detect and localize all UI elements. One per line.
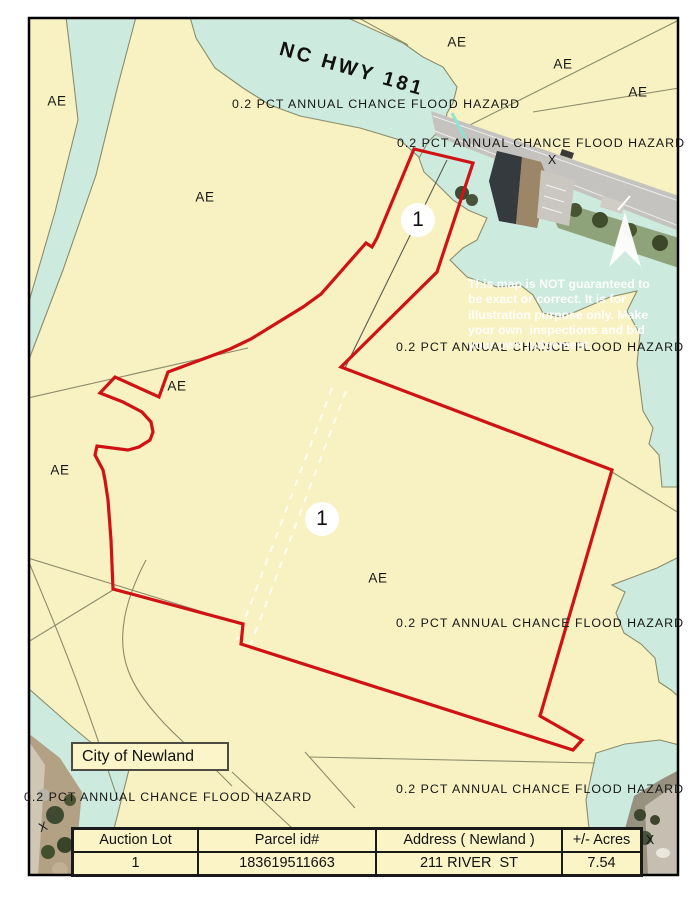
disclaimer-line: be exact or correct. It is for [468, 292, 688, 307]
disclaimer-line: This map is NOT guaranteed to [468, 277, 688, 292]
table-header-parcel: Parcel id# [198, 829, 376, 852]
parking-lot [537, 170, 575, 226]
disclaimer-text: This map is NOT guaranteed to be exact o… [468, 277, 688, 353]
zone-ae-label: AE [447, 35, 466, 50]
table-header-address: Address ( Newland ) [376, 829, 562, 852]
flood-hazard-label: 0.2 PCT ANNUAL CHANCE FLOOD HAZARD [232, 97, 520, 111]
table-cell-parcel: 183619511663 [198, 852, 376, 875]
flood-hazard-label: 0.2 PCT ANNUAL CHANCE FLOOD HAZARD [397, 136, 685, 150]
zone-ae-label: AE [628, 85, 647, 100]
lot-marker: 1 [305, 502, 339, 536]
flood-map-page: NC HWY 181 0.2 PCT ANNUAL CHANCE FLOOD H… [0, 0, 695, 899]
flood-hazard-label: 0.2 PCT ANNUAL CHANCE FLOOD HAZARD [24, 790, 312, 804]
flood-hazard-label: 0.2 PCT ANNUAL CHANCE FLOOD HAZARD [396, 782, 684, 796]
auction-table: Auction Lot Parcel id# Address ( Newland… [71, 827, 643, 877]
disclaimer-line: your own judgement. [468, 338, 688, 353]
table-header-lot: Auction Lot [73, 829, 198, 852]
table-cell-lot: 1 [73, 852, 198, 875]
disclaimer-line: illustration purpose only. Make [468, 308, 688, 323]
city-label-box: City of Newland [71, 742, 229, 771]
zone-x-label: X [548, 153, 556, 167]
zone-ae-label: AE [368, 571, 387, 586]
table-cell-address: 211 RIVER ST [376, 852, 562, 875]
lot-marker: 1 [401, 203, 435, 237]
zone-ae-label: AE [553, 57, 572, 72]
zone-ae-label: AE [50, 463, 69, 478]
zone-ae-label: AE [195, 190, 214, 205]
zone-ae-label: AE [47, 94, 66, 109]
zone-x-label: X [646, 833, 654, 847]
table-header-acres: +/- Acres [562, 829, 641, 852]
table-cell-acres: 7.54 [562, 852, 641, 875]
flood-hazard-label: 0.2 PCT ANNUAL CHANCE FLOOD HAZARD [396, 616, 684, 630]
disclaimer-line: your own inspections and bid [468, 323, 688, 338]
zone-ae-label: AE [167, 379, 186, 394]
